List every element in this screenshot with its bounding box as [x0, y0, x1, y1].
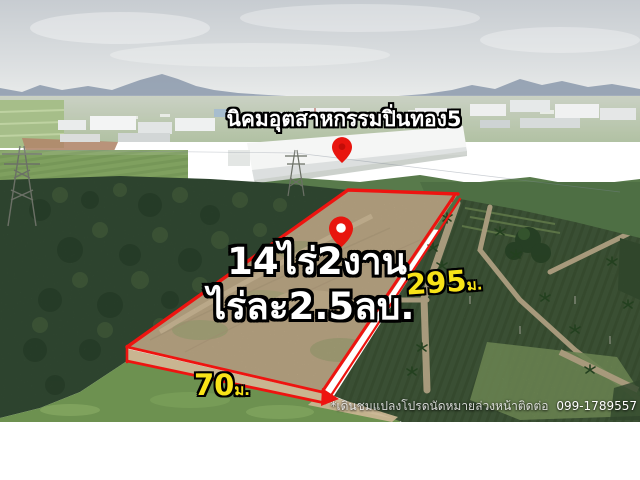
width-unit: ม.: [234, 381, 250, 399]
contact-phone: 099-1789557: [556, 399, 637, 413]
footer-note: *เดินชมแปลงโปรดนัดหมายล่วงหน้าติดต่อ: [330, 399, 548, 413]
aerial-photo: [0, 0, 640, 422]
length-value: 295: [405, 263, 468, 301]
plot-price-label: ไร่ละ2.5ลบ.: [208, 288, 415, 325]
dimension-width-label: 70ม.: [194, 371, 250, 400]
dimension-length-label: 295ม.: [405, 265, 483, 299]
land-listing-photo: นิคมอุตสาหกรรมปิ่นทอง5 14ไร่2งาน ไร่ละ2.…: [0, 0, 640, 480]
contact-footer: *เดินชมแปลงโปรดนัดหมายล่วงหน้าติดต่อ 099…: [330, 400, 637, 412]
industrial-estate-label: นิคมอุตสาหกรรมปิ่นทอง5: [226, 109, 461, 130]
width-value: 70: [194, 368, 234, 402]
length-unit: ม.: [466, 275, 483, 294]
plot-area-label: 14ไร่2งาน: [227, 243, 407, 280]
estate-location-pin-icon: [332, 137, 352, 163]
